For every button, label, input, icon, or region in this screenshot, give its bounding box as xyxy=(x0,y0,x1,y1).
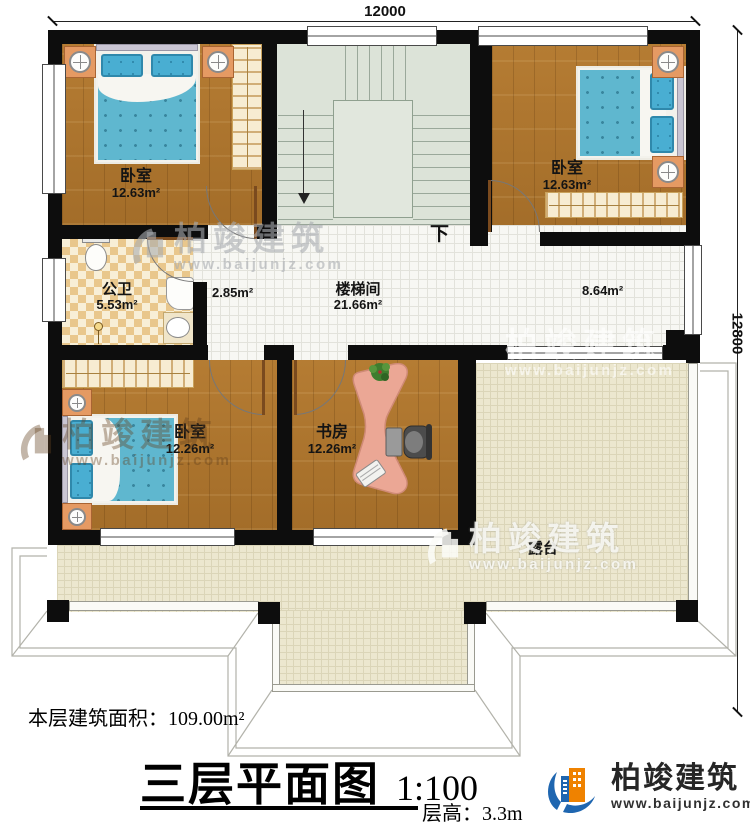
wall xyxy=(48,530,100,545)
toilet-bowl xyxy=(85,244,107,271)
terrace-railing-south-left xyxy=(69,601,259,611)
stair-direction-arrow xyxy=(298,193,310,204)
window xyxy=(684,245,702,335)
room-name: 公卫 xyxy=(67,281,167,298)
window xyxy=(313,528,443,546)
office-chair xyxy=(404,424,432,460)
window xyxy=(478,26,648,46)
room-name: 露台 xyxy=(493,540,593,557)
room-area: 12.63m² xyxy=(86,186,186,201)
terrace-column xyxy=(464,602,486,624)
dimension-height: 12800 xyxy=(729,299,746,369)
floor-drain-stem xyxy=(98,330,99,344)
stair-flight-right xyxy=(413,104,470,220)
room-label-bedroom-ne: 卧室 12.63m² xyxy=(517,160,617,193)
door-leaf xyxy=(262,360,265,415)
bed xyxy=(96,44,198,162)
floor-plan-canvas: 卧室 12.63m² 卧室 12.63m² 公卫 5.53m² 2.85m² 楼… xyxy=(0,0,750,830)
wall xyxy=(540,232,700,246)
lamp-icon xyxy=(657,161,679,183)
terrace-floor-bay xyxy=(272,610,475,690)
brand-logo-icon xyxy=(543,760,601,816)
nightstand xyxy=(64,46,96,78)
stair-direction-line xyxy=(303,110,304,194)
wall xyxy=(348,345,507,360)
stair-flight-top xyxy=(345,44,413,100)
door-leaf xyxy=(488,180,491,232)
floor-area-text: 本层建筑面积：109.00m² xyxy=(28,702,245,731)
terrace-railing-south-right xyxy=(486,601,677,611)
room-name: 卧室 xyxy=(140,424,240,442)
wardrobe xyxy=(62,358,194,388)
terrace-sliding-door xyxy=(507,346,663,360)
sink-basin xyxy=(166,317,190,338)
room-name: 楼梯间 xyxy=(308,281,408,298)
room-name: 卧室 xyxy=(86,168,186,186)
terrace-railing-bay-bottom xyxy=(272,684,475,692)
hall-west-area: 2.85m² xyxy=(212,285,253,300)
brand-logo-name: 柏竣建筑 xyxy=(611,764,750,794)
stair-landing xyxy=(333,100,413,218)
wardrobe xyxy=(545,192,683,218)
wall xyxy=(48,345,208,360)
wall xyxy=(686,30,700,245)
nightstand xyxy=(652,156,684,188)
brand-logo: 柏竣建筑 www.baijunjz.com xyxy=(543,760,750,816)
wall xyxy=(470,232,488,246)
floor-height-text: 层高：3.3m xyxy=(422,797,523,826)
wall xyxy=(193,282,207,345)
room-area: 12.26m² xyxy=(282,442,382,457)
wall xyxy=(48,30,307,44)
nightstand xyxy=(62,389,92,416)
room-label-bedroom-sw: 卧室 12.26m² xyxy=(140,424,240,457)
lamp-icon xyxy=(207,51,229,73)
lamp-icon xyxy=(68,394,86,412)
room-label-stairwell: 楼梯间 21.66m² xyxy=(308,281,408,313)
title-underline xyxy=(140,806,418,810)
wall xyxy=(437,30,478,44)
wall xyxy=(48,30,62,64)
door-leaf xyxy=(147,237,193,240)
wall xyxy=(262,44,277,225)
lamp-icon xyxy=(657,51,679,73)
nightstand xyxy=(652,46,684,78)
terrace-column xyxy=(676,600,698,622)
room-label-terrace: 露台 xyxy=(493,540,593,557)
room-area: 21.66m² xyxy=(308,298,408,313)
wall xyxy=(458,345,476,530)
wall xyxy=(663,345,700,360)
room-area: 12.26m² xyxy=(140,442,240,457)
room-name: 书房 xyxy=(282,424,382,442)
monitor xyxy=(386,428,402,456)
dimension-line-right xyxy=(737,30,738,712)
terrace-column xyxy=(258,602,280,624)
door-leaf xyxy=(294,360,297,415)
terrace-column xyxy=(47,600,69,622)
dimension-width: 12000 xyxy=(350,3,420,20)
window xyxy=(42,64,66,194)
nightstand xyxy=(202,46,234,78)
bed xyxy=(578,68,684,158)
nightstand xyxy=(62,503,92,530)
terrace-railing-east xyxy=(688,363,698,602)
room-area: 5.53m² xyxy=(67,298,167,313)
window xyxy=(42,258,66,322)
window xyxy=(100,528,235,546)
lamp-icon xyxy=(68,508,86,526)
door-leaf xyxy=(254,186,257,239)
room-label-bathroom: 公卫 5.53m² xyxy=(67,281,167,313)
room-label-study: 书房 12.26m² xyxy=(282,424,382,457)
hall-east-area: 8.64m² xyxy=(582,283,623,298)
room-name: 卧室 xyxy=(517,160,617,178)
plan-title: 三层平面图 xyxy=(140,748,380,814)
stairs-down-label: 下 xyxy=(430,219,449,246)
wall xyxy=(443,530,476,545)
room-label-bedroom-nw: 卧室 12.63m² xyxy=(86,168,186,201)
brand-logo-site: www.baijunjz.com xyxy=(611,794,750,812)
lamp-icon xyxy=(69,51,91,73)
dimension-line-top xyxy=(52,21,695,22)
room-area: 12.63m² xyxy=(517,178,617,193)
window xyxy=(307,26,437,46)
wall xyxy=(235,530,313,545)
wall xyxy=(256,225,277,239)
wardrobe xyxy=(232,44,262,170)
